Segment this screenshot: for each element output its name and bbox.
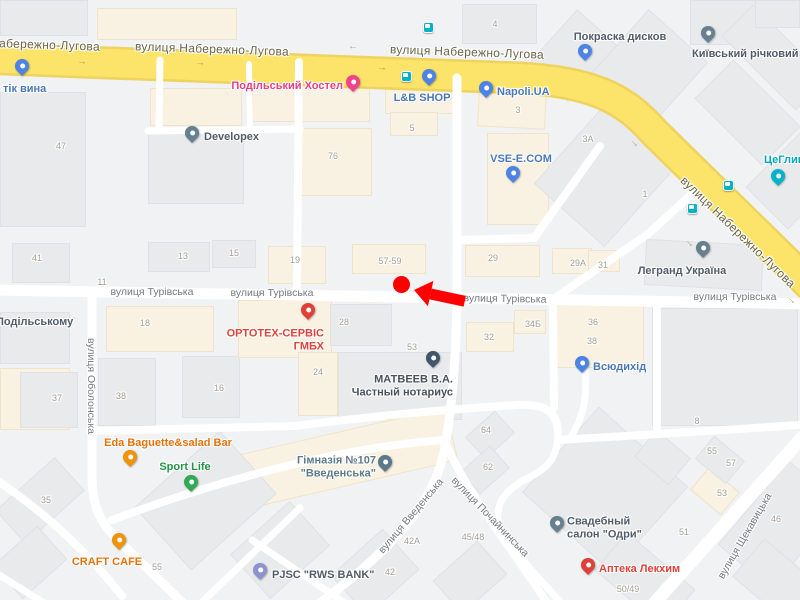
poi-ortoteh-servis-gmbh[interactable]: ОРТОТЕХ-СЕРВІСГМБХ bbox=[227, 328, 324, 353]
location-dot bbox=[393, 276, 410, 293]
poi-tseglyna[interactable]: ЦеГлин bbox=[764, 154, 800, 167]
building-number: 8 bbox=[694, 416, 699, 426]
one-way-arrow-icon: → bbox=[77, 57, 87, 68]
bus-stop-icon[interactable] bbox=[723, 180, 734, 191]
building-number: 51 bbox=[679, 527, 689, 537]
street-label: вулиця Турівська bbox=[463, 292, 546, 305]
building-number: 62 bbox=[483, 462, 493, 472]
poi-developex[interactable]: Developex bbox=[204, 131, 259, 144]
building-number: 50/49 bbox=[617, 584, 640, 594]
building-number: 11 bbox=[97, 277, 106, 287]
one-way-arrow-icon: → bbox=[253, 288, 263, 299]
building-number: 31 bbox=[598, 260, 608, 270]
poi-matveev-notarius[interactable]: МАТВЕЕВ В.А.Частный нотариус bbox=[352, 374, 453, 399]
building-number: 38 bbox=[587, 336, 597, 346]
building-number: 16 bbox=[214, 383, 224, 393]
poi-apteka-lekhim[interactable]: Аптека Лекхим bbox=[599, 563, 680, 576]
poi-svadebnyi-salon-odri[interactable]: Свадебныйсалон "Одри" bbox=[567, 516, 642, 541]
bus-stop-icon[interactable] bbox=[687, 203, 698, 214]
poi-vsiudykhid[interactable]: Всюдихід bbox=[593, 361, 646, 374]
building-number: 42А bbox=[404, 536, 420, 546]
poi-legrand-ukraina[interactable]: Легранд Україна bbox=[638, 265, 727, 278]
building-number: 32 bbox=[484, 332, 494, 342]
building-number: 1 bbox=[642, 189, 647, 199]
building-number: 35 bbox=[41, 495, 51, 505]
map-canvas[interactable]: 47764533А12929А3157-59194113151118373816… bbox=[0, 0, 800, 600]
building-number: 5 bbox=[409, 123, 414, 133]
street-label: вулиця Турівська bbox=[231, 287, 314, 299]
building-number: 29А bbox=[570, 258, 586, 268]
building-number: 55 bbox=[707, 446, 717, 456]
poi-pjsc-rws-bank[interactable]: PJSC "RWS BANK" bbox=[272, 569, 375, 582]
building-number: 4 bbox=[492, 19, 497, 29]
building-number: 13 bbox=[178, 251, 188, 261]
poi-kyivskyi-richkovyi-port[interactable]: Київський річковий по bbox=[692, 48, 800, 61]
building-number: 38 bbox=[116, 391, 126, 401]
street-label: вулиця Турівська bbox=[111, 286, 194, 298]
building-number: 24 bbox=[313, 367, 323, 377]
poi-podilskomu[interactable]: Подільському bbox=[0, 316, 73, 329]
building-number: 76 bbox=[328, 151, 338, 161]
bus-stop-icon[interactable] bbox=[401, 71, 412, 82]
street-label: вулиця Оболонська bbox=[85, 338, 97, 434]
building-number: 34Б bbox=[525, 319, 541, 329]
poi-eda-baguette-salad-bar[interactable]: Eda Baguette&salad Bar bbox=[104, 437, 232, 450]
building-number: 42 bbox=[385, 567, 395, 577]
poi-himnaziya-107-vvedenska[interactable]: Гімназія №107"Введенська" bbox=[297, 455, 376, 480]
one-way-arrow-icon: → bbox=[377, 63, 387, 74]
poi-podilskyi-hostel[interactable]: Подільський Хостел bbox=[231, 80, 343, 93]
building-number: 57 bbox=[726, 458, 736, 468]
building-number: 36 bbox=[588, 317, 598, 327]
building-number: 28 bbox=[339, 317, 349, 327]
street-label: вулиця Турівська bbox=[694, 291, 777, 303]
one-way-arrow-icon: → bbox=[348, 43, 358, 54]
building-number: 18 bbox=[140, 318, 150, 328]
poi-napoli-ua[interactable]: Napoli.UA bbox=[497, 86, 550, 99]
one-way-arrow-icon: → bbox=[195, 58, 205, 69]
poi-butik-vyna[interactable]: тік вина bbox=[3, 83, 46, 96]
building-number: 45/48 bbox=[462, 532, 485, 542]
building-number: 53 bbox=[407, 342, 417, 352]
roads-layer bbox=[0, 0, 800, 600]
building-number: 64 bbox=[481, 425, 491, 435]
building-number: 19 bbox=[290, 255, 300, 265]
building-number: 53 bbox=[717, 488, 727, 498]
building-number: 3А bbox=[582, 134, 593, 144]
building-number: 47 bbox=[56, 141, 66, 151]
poi-lb-shop[interactable]: L&B SHOP bbox=[394, 92, 451, 105]
poi-vse-e-com[interactable]: VSE-E.COM bbox=[490, 153, 552, 166]
building-number: 55 bbox=[152, 562, 162, 572]
bus-stop-icon[interactable] bbox=[423, 22, 434, 33]
poi-craft-cafe[interactable]: CRAFT CAFE bbox=[72, 556, 142, 569]
building-number: 29 bbox=[488, 253, 498, 263]
building-number: 46 bbox=[771, 514, 781, 524]
building-number: 15 bbox=[229, 248, 239, 258]
poi-sport-life[interactable]: Sport Life bbox=[159, 461, 210, 474]
building-number: 3 bbox=[515, 105, 520, 115]
poi-pokraska-dyskiv[interactable]: Покраска дисков bbox=[574, 31, 666, 44]
arrow-shaft bbox=[429, 288, 466, 306]
building-number: 37 bbox=[52, 393, 62, 403]
building-number: 57-59 bbox=[378, 256, 401, 266]
building-number: 41 bbox=[32, 253, 42, 263]
